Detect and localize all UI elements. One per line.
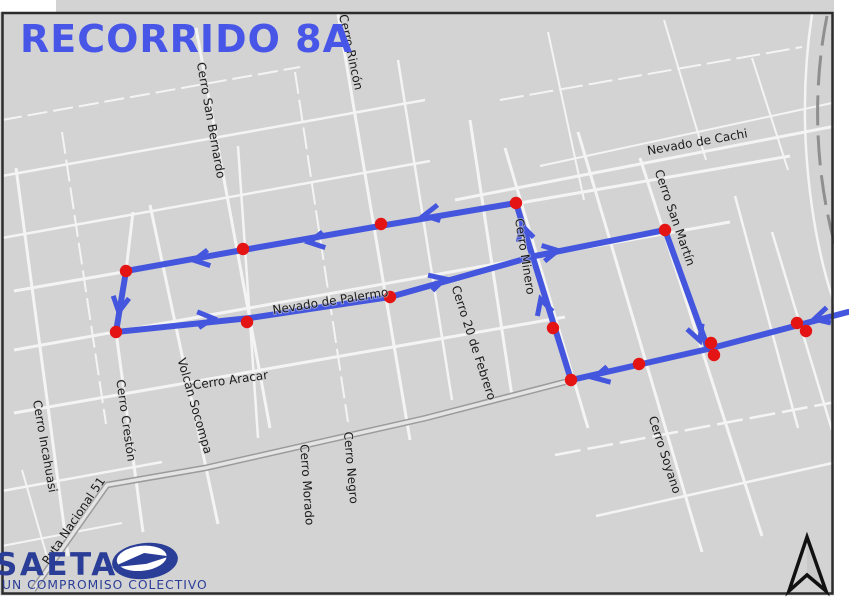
bus-stop-dot	[708, 349, 720, 361]
bus-stop-dot	[633, 358, 645, 370]
bus-stop-dot	[241, 316, 253, 328]
route-map: Cerro San BernardoCerro RincónNevado de …	[0, 0, 849, 600]
bus-stop-dot	[565, 374, 577, 386]
bus-stop-dot	[705, 337, 717, 349]
bottom-margin	[0, 596, 849, 600]
bus-stop-dot	[659, 224, 671, 236]
bus-stop-dot	[237, 243, 249, 255]
bus-stop-dot	[110, 326, 122, 338]
bus-stop-dot	[120, 265, 132, 277]
bus-stop-dot	[375, 218, 387, 230]
bus-stop-dot	[800, 325, 812, 337]
saeta-tagline: UN COMPROMISO COLECTIVO	[2, 578, 208, 592]
route-map-page: Cerro San BernardoCerro RincónNevado de …	[0, 0, 849, 600]
bus-stop-dot	[510, 197, 522, 209]
page-title: RECORRIDO 8A	[20, 17, 353, 61]
bus-stop-dot	[547, 322, 559, 334]
top-left-margin	[0, 0, 56, 12]
right-margin	[834, 0, 849, 600]
